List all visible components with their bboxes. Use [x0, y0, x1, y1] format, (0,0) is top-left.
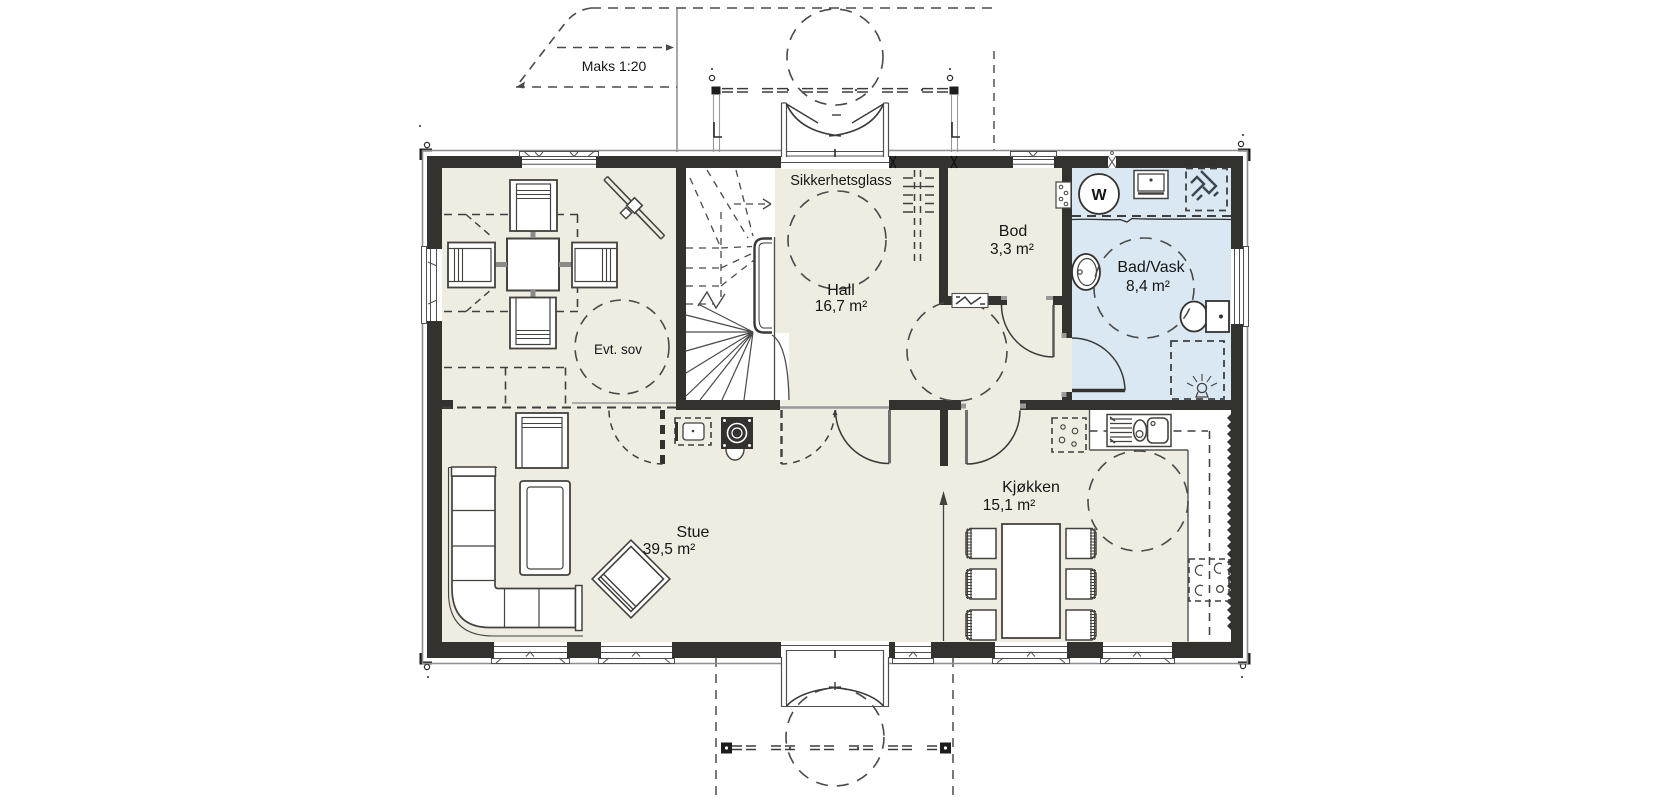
svg-text:15,1 m²: 15,1 m²	[983, 497, 1036, 514]
svg-text:8,4 m²: 8,4 m²	[1126, 278, 1170, 295]
svg-text:3,3 m²: 3,3 m²	[990, 241, 1034, 258]
svg-text:Bod: Bod	[999, 223, 1027, 240]
svg-text:Maks 1:20: Maks 1:20	[582, 58, 647, 74]
svg-text:39,5 m²: 39,5 m²	[643, 541, 696, 558]
svg-text:Bad/Vask: Bad/Vask	[1117, 259, 1185, 276]
svg-text:Sikkerhetsglass: Sikkerhetsglass	[790, 173, 892, 189]
svg-text:Kjøkken: Kjøkken	[1002, 479, 1060, 496]
svg-text:16,7 m²: 16,7 m²	[815, 298, 868, 315]
svg-text:W: W	[1091, 187, 1107, 204]
svg-text:Stue: Stue	[677, 524, 710, 541]
svg-text:Evt. sov: Evt. sov	[594, 342, 642, 357]
svg-text:Hall: Hall	[827, 282, 855, 299]
